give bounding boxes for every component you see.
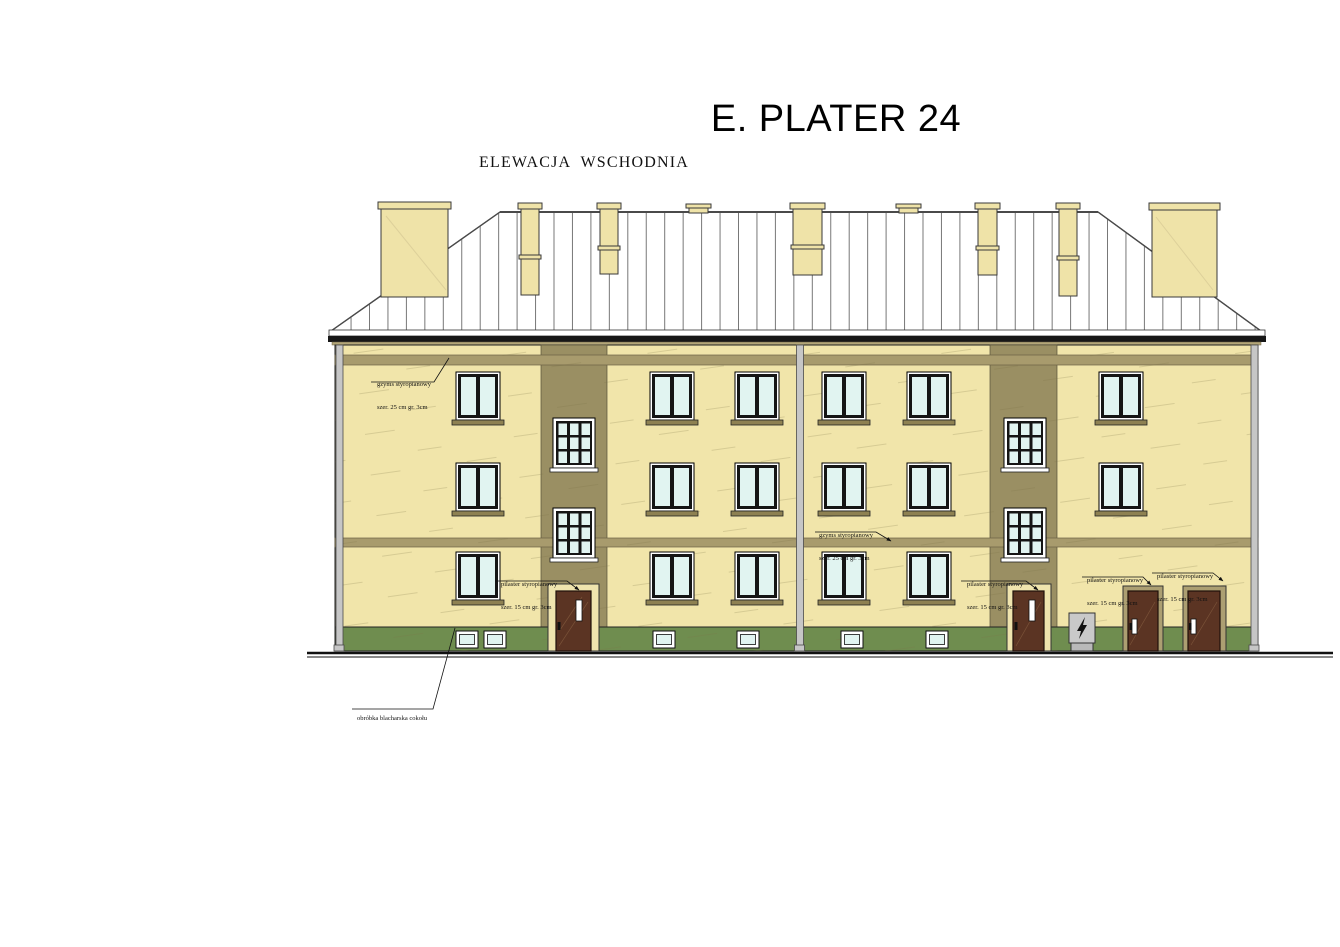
window [452,552,504,605]
stairwell-window [550,508,598,562]
basement-window [926,631,948,648]
annotation-line: szer. 25 cm gr. 3cm [819,555,873,563]
elevation-drawing [0,0,1340,947]
window [452,463,504,516]
stairwell-window [550,418,598,472]
elevation-sheet: E. PLATER 24 ELEWACJA WSCHODNIA gzyms st… [0,0,1340,947]
annotation-gzyms-mid: gzyms styropianowy szer. 25 cm gr. 3cm [819,517,873,577]
window [903,552,955,605]
annotation-pilaster-2: pilaster styropianowy szer. 15 cm gr. 3c… [967,566,1023,626]
window [1095,372,1147,425]
basement-window [456,631,478,648]
window [903,463,955,516]
annotation-line: gzyms styropianowy [819,532,873,540]
ridge-vent-2 [896,204,921,213]
stairwell-window [1001,508,1049,562]
annotation-line: pilaster styropianowy [967,581,1023,589]
annotation-pilaster-3: pilaster styropianowy szer. 15 cm gr. 3c… [1087,562,1143,622]
basement-window [737,631,759,648]
annotation-line: pilaster styropianowy [1087,577,1143,585]
annotation-line: gzyms styropianowy [377,381,431,389]
chimney-large-right [1149,203,1220,297]
annotation-pilaster-4: pilaster styropianowy szer. 15 cm gr. 3c… [1157,558,1213,618]
chimney-6 [1056,203,1080,296]
elevation-label: ELEWACJA WSCHODNIA [479,154,689,172]
window [818,372,870,425]
annotation-pilaster-1: pilaster styropianowy szer. 15 cm gr. 3c… [501,566,557,626]
window [731,372,783,425]
eaves-gutter-band [328,336,1266,342]
chimney-large-left [378,202,451,297]
annotation-line: szer. 15 cm gr. 3cm [501,604,557,612]
ridge-vent-1 [686,204,711,213]
annotation-gzyms-top: gzyms styropianowy szer. 25 cm gr. 3cm [377,366,431,426]
window [903,372,955,425]
basement-window [653,631,675,648]
eaves [328,330,1266,345]
chimney-2 [518,203,542,295]
window [731,463,783,516]
annotation-line: szer. 15 cm gr. 3cm [967,604,1023,612]
drawing-title: E. PLATER 24 [636,98,1036,141]
window [646,552,698,605]
annotation-line: pilaster styropianowy [1157,573,1213,581]
ground-line [307,653,1333,657]
stairwell-window [1001,418,1049,472]
window [646,372,698,425]
window [646,463,698,516]
annotation-line: szer. 15 cm gr. 3cm [1157,596,1213,604]
window [452,372,504,425]
window [731,552,783,605]
annotation-cokol: obróbka blacharska cokołu [357,700,427,738]
basement-window [484,631,506,648]
chimney-4 [790,203,825,275]
annotation-line: szer. 15 cm gr. 3cm [1087,600,1143,608]
window [818,463,870,516]
window [1095,463,1147,516]
chimney-3 [597,203,621,274]
eaves-fascia [329,330,1265,336]
chimney-5 [975,203,1000,275]
basement-window [841,631,863,648]
annotation-line: szer. 25 cm gr. 3cm [377,404,431,412]
annotation-line: obróbka blacharska cokołu [357,715,427,723]
annotation-line: pilaster styropianowy [501,581,557,589]
